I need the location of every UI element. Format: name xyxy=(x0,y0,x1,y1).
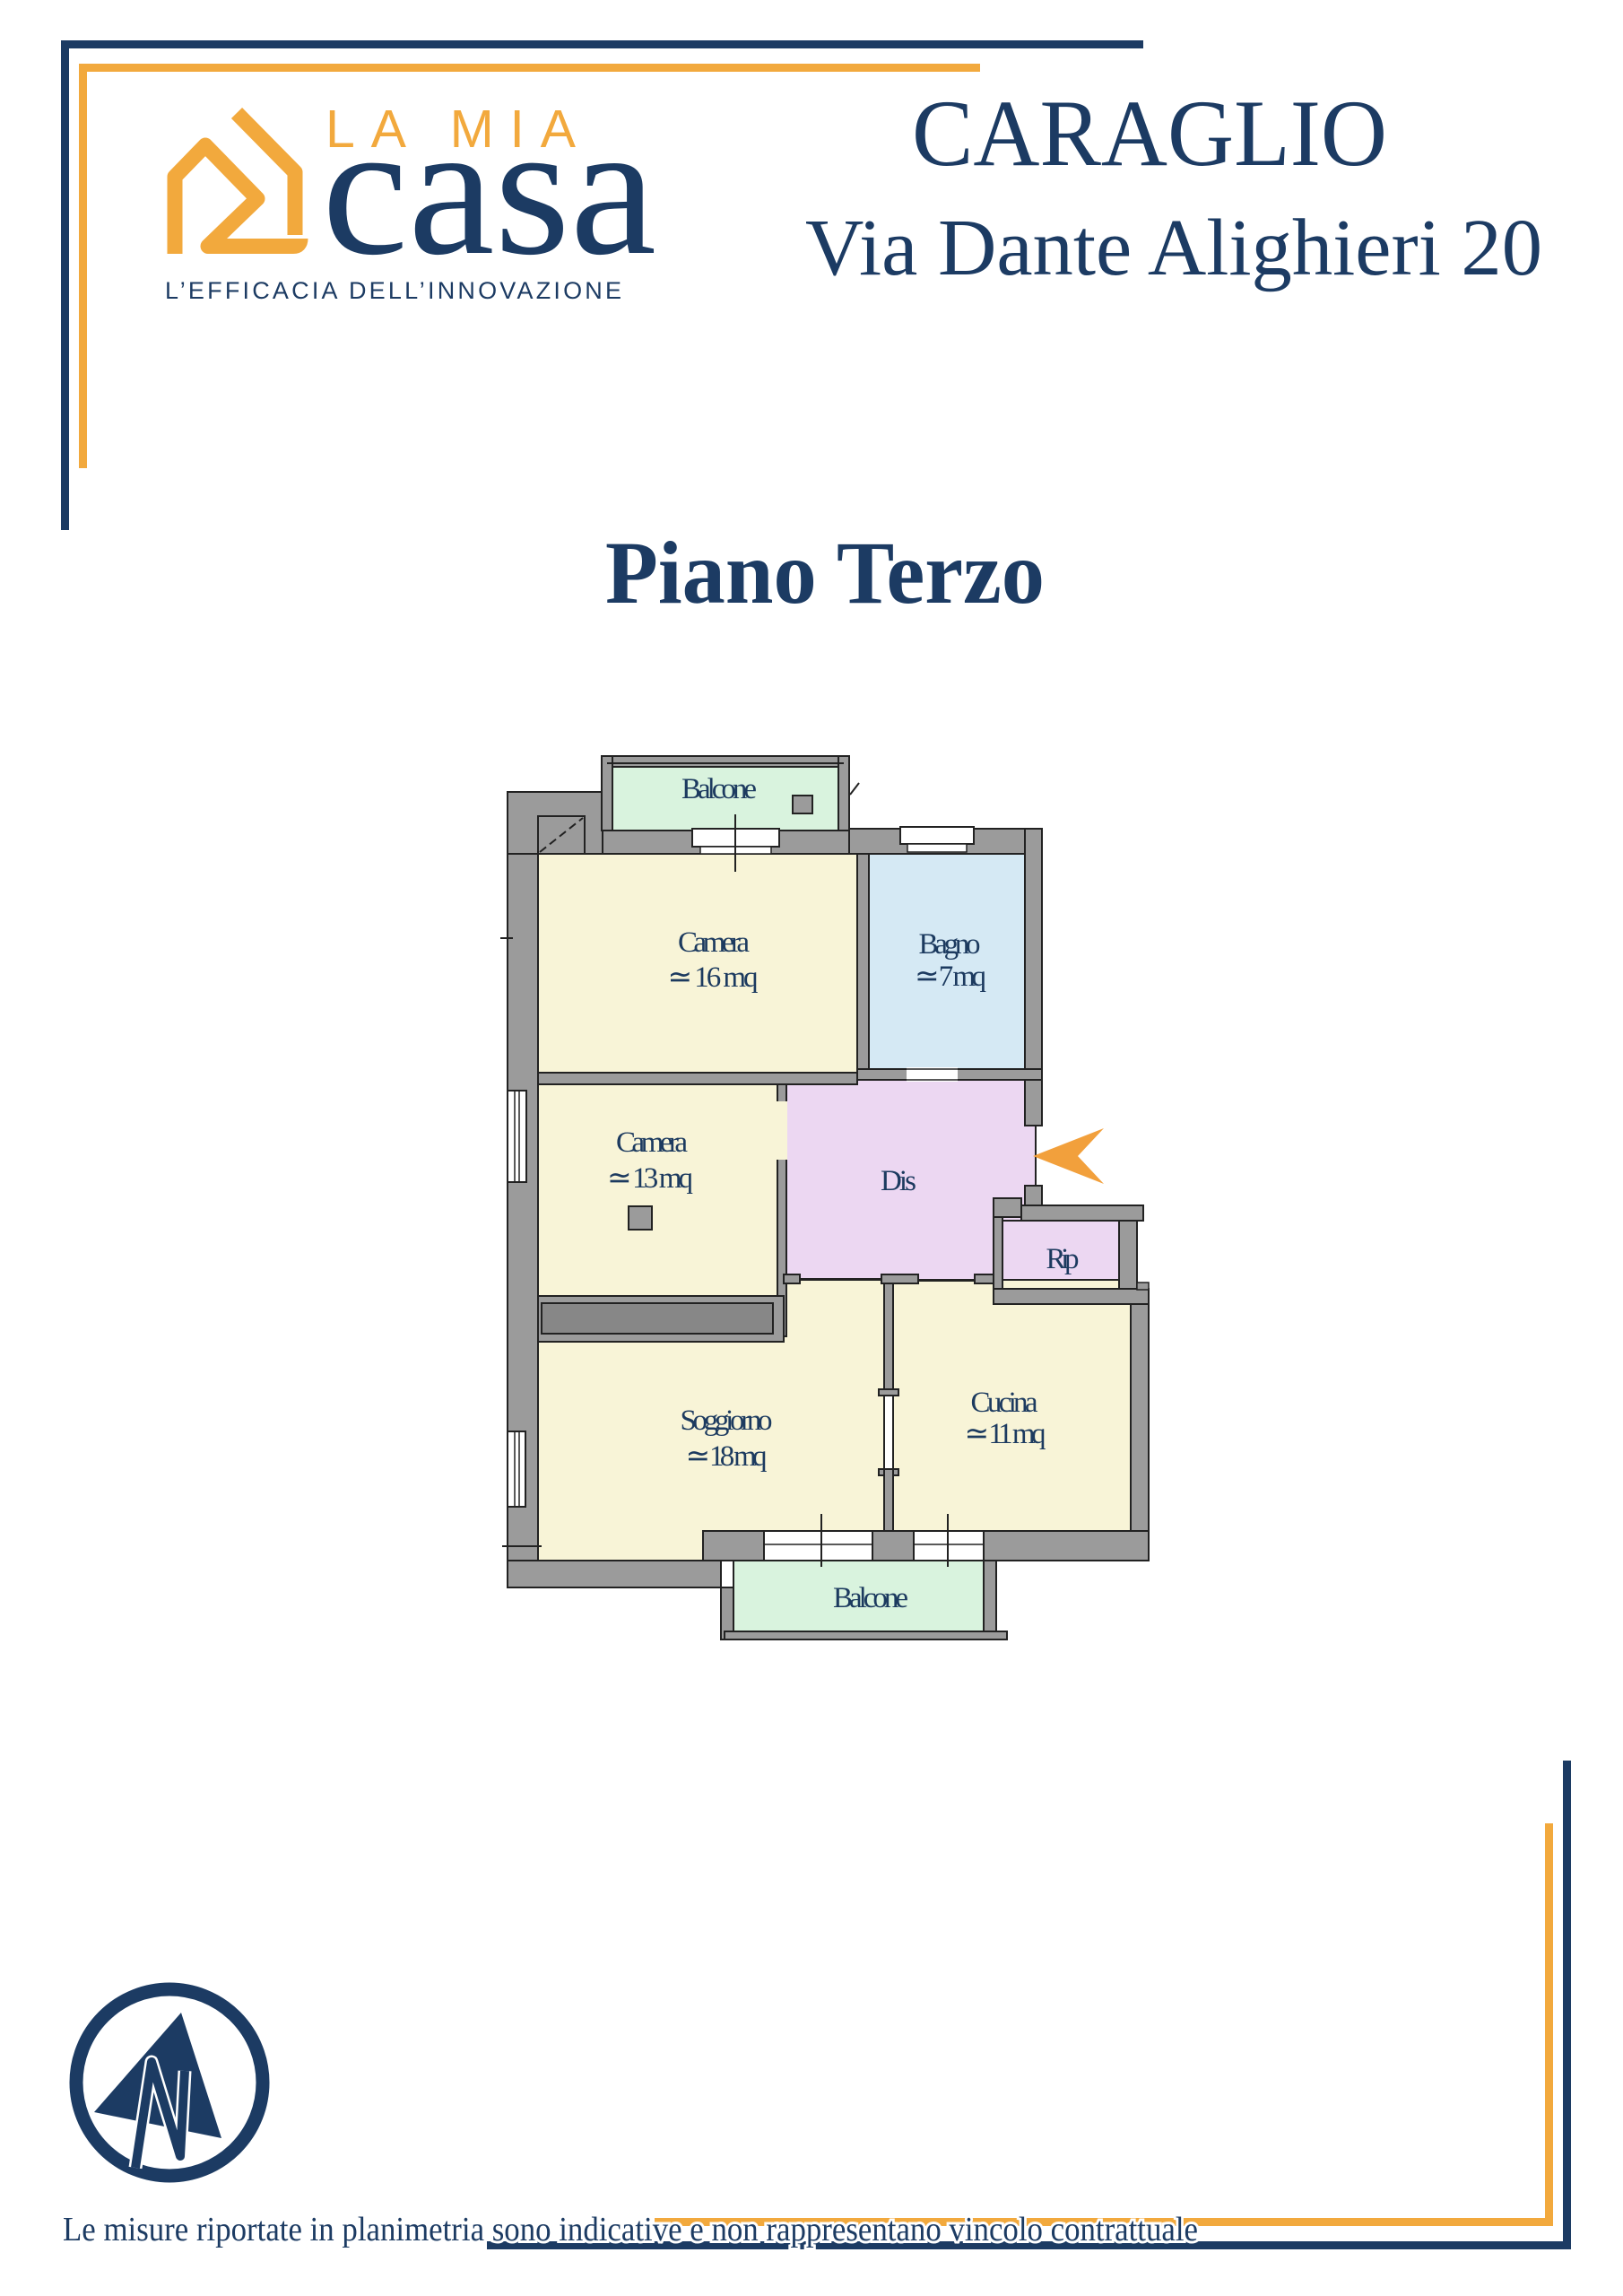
svg-text:Balcone: Balcone xyxy=(681,773,757,805)
svg-text:≃ 11 mq: ≃ 11 mq xyxy=(965,1418,1046,1450)
svg-text:CARAGLIO: CARAGLIO xyxy=(912,81,1387,186)
svg-text:Bagno: Bagno xyxy=(919,928,981,961)
svg-text:Balcone: Balcone xyxy=(833,1582,908,1614)
svg-text:Rip: Rip xyxy=(1046,1243,1080,1275)
svg-text:Camera: Camera xyxy=(678,926,750,959)
svg-text:Cucina: Cucina xyxy=(971,1387,1038,1419)
svg-text:L’EFFICACIA DELL’INNOVAZIONE: L’EFFICACIA DELL’INNOVAZIONE xyxy=(165,277,624,304)
svg-text:Dis: Dis xyxy=(881,1165,916,1197)
svg-text:≃ 7 mq: ≃ 7 mq xyxy=(915,961,986,993)
svg-text:Le misure riportate in planime: Le misure riportate in planimetria sono … xyxy=(63,2211,1198,2248)
svg-text:Via Dante Alighieri 20: Via Dante Alighieri 20 xyxy=(805,204,1542,292)
svg-text:Piano Terzo: Piano Terzo xyxy=(605,523,1045,622)
svg-text:≃ 16 mq: ≃ 16 mq xyxy=(668,961,759,994)
svg-text:Soggiorno: Soggiorno xyxy=(681,1405,773,1437)
svg-text:Camera: Camera xyxy=(616,1126,688,1159)
svg-text:≃ 18 mq: ≃ 18 mq xyxy=(686,1440,768,1473)
svg-text:≃ 13 mq: ≃ 13 mq xyxy=(607,1162,693,1195)
svg-text:casa: casa xyxy=(322,83,656,295)
